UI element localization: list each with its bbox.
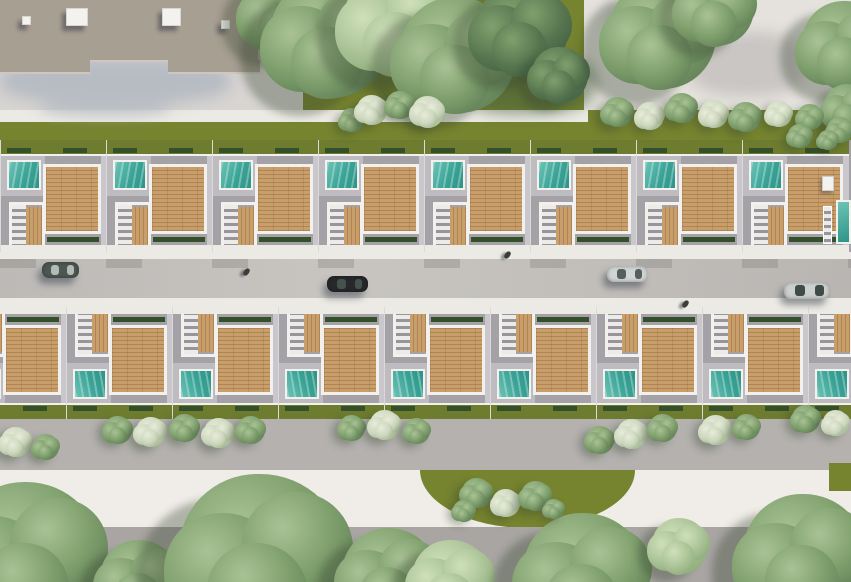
wood-roof-terrace <box>255 164 313 234</box>
wood-roof-terrace <box>321 325 379 395</box>
front-sidewalk <box>491 307 597 314</box>
villa-unit <box>596 307 702 419</box>
foliage-lobe <box>316 0 395 70</box>
stair-deck <box>605 311 641 357</box>
wood-roof-terrace <box>467 164 525 234</box>
wood-roof-terrace <box>679 164 737 234</box>
foliage-lobe <box>736 114 754 132</box>
hedge-strip <box>365 237 417 242</box>
stair-deck <box>115 202 151 248</box>
street-sidewalk-top <box>0 252 851 259</box>
hedge-strip <box>643 317 695 322</box>
cast-shadow <box>40 96 170 116</box>
edge-roof-vent <box>822 176 834 191</box>
roof-stairs <box>820 314 834 354</box>
villa-unit <box>636 140 742 252</box>
roof-stairs <box>608 314 622 354</box>
hedge-strip <box>577 237 629 242</box>
swimming-pool <box>325 160 359 190</box>
foliage-lobe <box>363 12 428 77</box>
villa-unit <box>66 307 172 419</box>
swimming-pool <box>0 369 1 399</box>
swimming-pool <box>815 369 849 399</box>
stair-deck-wood <box>834 314 850 352</box>
back-garden-grass <box>385 403 491 419</box>
foliage-lobe <box>795 110 814 129</box>
wood-roof-terrace <box>43 164 101 234</box>
villa-row-upper <box>0 140 851 252</box>
front-sidewalk <box>743 245 849 252</box>
roof-stairs <box>396 314 410 354</box>
villa-unit <box>490 307 596 419</box>
wood-roof-terrace <box>427 325 485 395</box>
stair-deck-wood <box>516 314 532 352</box>
foliage-lobe <box>837 120 851 137</box>
cast-shadow <box>688 32 806 96</box>
stair-deck-wood <box>132 207 148 245</box>
stair-deck-wood <box>304 314 320 352</box>
swimming-pool <box>709 369 743 399</box>
roof-stairs <box>502 314 516 354</box>
back-garden-grass <box>809 403 851 419</box>
stair-deck <box>0 311 5 357</box>
tree <box>344 0 452 76</box>
parked-car <box>784 282 830 299</box>
stair-deck-wood <box>238 207 254 245</box>
stair-deck <box>499 311 535 357</box>
hedge-strip <box>789 237 841 242</box>
roof-stairs <box>184 314 198 354</box>
villa-unit <box>384 307 490 419</box>
stair-deck <box>711 311 747 357</box>
hedge-strip <box>153 237 205 242</box>
roof-stairs <box>542 205 556 245</box>
front-sidewalk <box>1 245 107 252</box>
street-sidewalk-bottom <box>0 298 851 307</box>
stair-deck-wood <box>556 207 572 245</box>
stair-deck <box>751 202 787 248</box>
stair-deck <box>9 202 45 248</box>
front-sidewalk <box>385 307 491 314</box>
front-sidewalk <box>531 245 637 252</box>
back-garden-grass <box>637 140 743 156</box>
stair-deck <box>539 202 575 248</box>
front-sidewalk <box>809 307 851 314</box>
wood-roof-terrace <box>3 325 61 395</box>
front-sidewalk <box>107 245 213 252</box>
front-sidewalk <box>319 245 425 252</box>
stair-deck <box>75 311 111 357</box>
back-garden-grass <box>491 403 597 419</box>
stair-deck-wood <box>622 314 638 352</box>
roof-stairs <box>290 314 304 354</box>
hedge-strip <box>259 237 311 242</box>
roof-stairs <box>754 205 768 245</box>
stair-deck-wood <box>768 207 784 245</box>
swimming-pool <box>537 160 571 190</box>
apartment-building-roof <box>0 0 260 62</box>
foliage-lobe <box>511 0 572 55</box>
back-garden-grass <box>597 403 703 419</box>
stair-deck-wood <box>0 314 2 352</box>
front-sidewalk <box>597 307 703 314</box>
villa-row-lower <box>0 307 851 419</box>
wood-roof-terrace <box>745 325 803 395</box>
stair-deck <box>287 311 323 357</box>
back-garden-grass <box>319 140 425 156</box>
stair-deck <box>393 311 429 357</box>
foliage-lobe <box>608 109 626 127</box>
car-windshield <box>795 285 805 296</box>
foliage-lobe <box>825 123 844 142</box>
roof-stairs <box>648 205 662 245</box>
car-rear-window <box>815 285 823 295</box>
edge-swimming-pool <box>836 200 851 244</box>
roof-vent <box>221 20 230 29</box>
stair-deck-wood <box>92 314 108 352</box>
car-rear-window <box>635 269 642 279</box>
stair-deck-wood <box>26 207 42 245</box>
hedge-strip <box>325 317 377 322</box>
roof-stairs <box>118 205 132 245</box>
swimming-pool <box>219 160 253 190</box>
corner-grass-left <box>0 560 132 582</box>
roof-stairs <box>330 205 344 245</box>
middle-street <box>0 252 851 307</box>
foliage-lobe <box>771 112 787 128</box>
small-plaza-building-roof <box>622 0 694 17</box>
wood-roof-terrace <box>215 325 273 395</box>
stair-deck-wood <box>662 207 678 245</box>
villa-unit <box>0 140 106 252</box>
building-roof-wing <box>168 60 260 74</box>
front-sidewalk <box>637 245 743 252</box>
roof-stairs <box>714 314 728 354</box>
roof-vent <box>162 8 181 26</box>
villa-unit <box>530 140 636 252</box>
back-garden-grass <box>425 140 531 156</box>
swimming-pool <box>285 369 319 399</box>
stair-deck-wood <box>450 207 466 245</box>
villa-unit <box>318 140 424 252</box>
swimming-pool <box>179 369 213 399</box>
roof-vent <box>66 8 88 26</box>
back-garden-grass <box>531 140 637 156</box>
wood-roof-terrace <box>573 164 631 234</box>
stair-deck-wood <box>198 314 214 352</box>
hedge-strip <box>219 317 271 322</box>
roof-stairs <box>436 205 450 245</box>
roof-vent <box>22 16 31 25</box>
swimming-pool <box>643 160 677 190</box>
aerial-development-render <box>0 0 851 582</box>
stair-deck <box>817 311 851 357</box>
front-sidewalk <box>425 245 531 252</box>
car-rear-window <box>67 265 74 275</box>
parked-car <box>607 266 648 282</box>
foliage-lobe <box>728 109 750 131</box>
hedge-strip <box>749 317 801 322</box>
foliage-lobe <box>385 0 456 51</box>
hedge-strip <box>471 237 523 242</box>
building-roof-wing <box>0 60 90 74</box>
wood-roof-terrace <box>149 164 207 234</box>
villa-unit <box>702 307 808 419</box>
stair-deck <box>645 202 681 248</box>
villa-unit <box>106 140 212 252</box>
back-garden-grass <box>213 140 319 156</box>
hedge-strip <box>113 317 165 322</box>
back-garden-grass <box>1 140 107 156</box>
back-garden-grass <box>67 403 173 419</box>
cast-shadow <box>455 52 595 114</box>
roof-stairs <box>224 205 238 245</box>
back-garden-grass <box>0 403 67 419</box>
front-sidewalk <box>703 307 809 314</box>
front-sidewalk <box>0 307 67 314</box>
villa-unit <box>808 307 851 419</box>
wood-roof-terrace <box>361 164 419 234</box>
wood-roof-terrace <box>639 325 697 395</box>
villa-unit <box>212 140 318 252</box>
car-rear-window <box>355 279 362 289</box>
stair-deck-wood <box>344 207 360 245</box>
hedge-strip <box>7 317 59 322</box>
swimming-pool <box>497 369 531 399</box>
stair-deck <box>433 202 469 248</box>
swimming-pool <box>391 369 425 399</box>
villa-unit <box>172 307 278 419</box>
car-windshield <box>617 269 626 280</box>
parked-car <box>327 276 368 292</box>
hedge-strip <box>683 237 735 242</box>
stair-deck <box>221 202 257 248</box>
stair-deck <box>181 311 217 357</box>
swimming-pool <box>7 160 41 190</box>
back-garden-grass <box>107 140 213 156</box>
villa-unit <box>742 140 848 252</box>
roof-stairs <box>12 205 26 245</box>
stair-deck-wood <box>410 314 426 352</box>
foliage-lobe <box>802 115 818 131</box>
foliage-lobe <box>641 113 658 130</box>
wood-roof-terrace <box>785 164 843 234</box>
back-garden-grass <box>279 403 385 419</box>
bottom-avenue <box>0 419 851 470</box>
back-garden-grass <box>743 140 849 156</box>
swimming-pool <box>603 369 637 399</box>
parked-car <box>42 262 79 278</box>
car-windshield <box>51 265 59 276</box>
hedge-strip <box>431 317 483 322</box>
corner-grass-right <box>829 463 851 491</box>
hedge-strip <box>537 317 589 322</box>
stair-deck-wood <box>728 314 744 352</box>
front-sidewalk <box>173 307 279 314</box>
wood-roof-terrace <box>109 325 167 395</box>
back-garden-grass <box>173 403 279 419</box>
stair-deck <box>327 202 363 248</box>
front-sidewalk <box>67 307 173 314</box>
front-sidewalk <box>213 245 319 252</box>
front-sidewalk <box>279 307 385 314</box>
foliage-lobe <box>335 0 413 71</box>
swimming-pool <box>431 160 465 190</box>
swimming-pool <box>113 160 147 190</box>
wood-roof-terrace <box>533 325 591 395</box>
car-windshield <box>337 279 346 290</box>
swimming-pool <box>749 160 783 190</box>
back-garden-grass <box>703 403 809 419</box>
villa-unit <box>0 307 66 419</box>
hedge-strip <box>47 237 99 242</box>
roof-stairs <box>78 314 92 354</box>
villa-unit <box>278 307 384 419</box>
driveway-marks <box>0 259 851 268</box>
villa-unit <box>424 140 530 252</box>
foliage-lobe <box>705 111 722 128</box>
swimming-pool <box>73 369 107 399</box>
edge-roof-stairs <box>823 206 832 244</box>
foliage-lobe <box>634 108 654 128</box>
